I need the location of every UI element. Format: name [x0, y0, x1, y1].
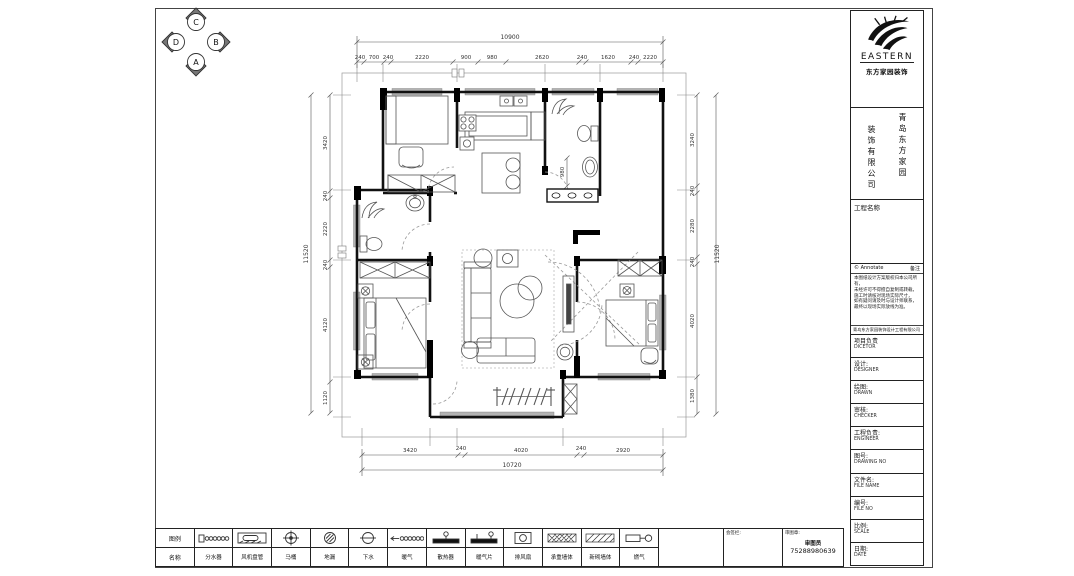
svg-text:1620: 1620: [601, 55, 615, 61]
study-chair: [399, 147, 423, 168]
legend-item: 地漏: [311, 529, 350, 566]
manifold-icon: [197, 530, 231, 546]
floor-drain-icon: [313, 530, 347, 546]
living-console: [497, 250, 518, 267]
logo-wordmark: EASTERN: [860, 52, 914, 63]
review-cell-label: 审图章:: [785, 530, 800, 536]
bedroom2-chair: [641, 348, 658, 364]
project-name-section: 工程名称: [851, 200, 923, 264]
row-scale: 比例: SCALE: [851, 520, 923, 543]
legend-item: 暖气: [388, 529, 427, 566]
furniture: [358, 96, 662, 414]
new-wall-icon: [583, 530, 617, 546]
drain-icon: [351, 530, 385, 546]
row-file-no: 编号: FILE NO: [851, 497, 923, 520]
row-file-name: 文件名: FILE NAME: [851, 474, 923, 497]
svg-text:2220: 2220: [415, 55, 429, 61]
svg-text:2280: 2280: [690, 219, 696, 233]
legend-item: 燃气: [620, 529, 659, 566]
bath2-sink: [583, 157, 598, 177]
radiator-icon: [429, 530, 463, 546]
logo-section: EASTERN 东方家园装饰: [851, 11, 923, 108]
svg-text:4120: 4120: [323, 318, 329, 332]
drawing-sheet: { "compass": {"top":"C","right":"B","bot…: [0, 0, 1074, 576]
bath1-plant: [362, 202, 384, 218]
bedroom1-nightstand-top: [358, 284, 373, 298]
legend-header-cell: 图例 名称: [156, 529, 195, 566]
notes-section: © Annotate 备注 本图纸设计方案版权归本公司所有， 未经许可不得擅自复…: [851, 264, 923, 335]
svg-text:2220: 2220: [323, 222, 329, 236]
row-date: 日期: DATE: [851, 543, 923, 565]
tv-cabinet: [563, 276, 574, 332]
compass-letter-left: D: [173, 38, 179, 47]
gas-meter-icon: [622, 530, 656, 546]
svg-text:3420: 3420: [403, 448, 417, 454]
svg-text:4020: 4020: [514, 448, 528, 454]
kitchen-stove: [459, 115, 476, 150]
entry-stool: [557, 344, 573, 360]
svg-text:240: 240: [323, 259, 329, 270]
company-name-section: 青岛东方家园 装饰有限公司: [851, 108, 923, 200]
legend-item: 暖气片: [466, 529, 505, 566]
svg-text:2220: 2220: [643, 55, 657, 61]
bath2-plant: [552, 99, 574, 115]
svg-text:2620: 2620: [535, 55, 549, 61]
kitchen-counter: [465, 112, 545, 140]
svg-text:240: 240: [576, 446, 587, 452]
svg-text:240: 240: [323, 190, 329, 201]
bath1-toilet: [360, 236, 382, 252]
svg-text:240: 240: [383, 55, 394, 61]
svg-text:700: 700: [369, 55, 380, 61]
plan-envelope: [342, 73, 686, 437]
svg-text:3240: 3240: [690, 133, 696, 147]
door-arcs: [402, 167, 640, 404]
bedroom2-nightstand: [620, 284, 634, 297]
legend-item: 分水器: [195, 529, 234, 566]
bath2-cabinet: [547, 189, 598, 202]
logo-subtitle: 东方家园装饰: [866, 66, 908, 76]
svg-text:240: 240: [355, 55, 366, 61]
bedroom1-wardrobe: [360, 262, 430, 278]
svg-text:2920: 2920: [616, 448, 630, 454]
legend-item: 承重墙体: [543, 529, 582, 566]
bedroom2-bed: [606, 300, 658, 346]
compass-letter-top: C: [193, 18, 199, 27]
legend-item: 马桶: [272, 529, 311, 566]
windows: [354, 89, 667, 419]
svg-text:900: 900: [461, 55, 472, 61]
legend-spacer-cell: [659, 529, 724, 566]
living-coffee-table: [500, 276, 542, 318]
svg-text:3420: 3420: [323, 136, 329, 150]
bath1-sink: [406, 195, 424, 211]
signature-cell: 会签栏:: [724, 529, 783, 566]
project-name-label: 工程名称: [854, 204, 880, 212]
notes-footer: 青岛东方家园装饰设计工程有限公司: [851, 325, 923, 334]
svg-text:10900: 10900: [500, 34, 519, 41]
wall-piers: [354, 88, 666, 379]
load-bearing-wall-icon: [545, 530, 579, 546]
reviewer-name: 审图员: [783, 539, 843, 547]
notes-line: 未经许可不得擅自复制或转载，: [854, 288, 920, 294]
legend-item: 散热器: [427, 529, 466, 566]
notes-annotate-mark: © Annotate: [854, 265, 883, 272]
fan-coil-icon: [235, 530, 269, 546]
legend-strip: 图例 名称 分水器 风机盘管 马桶 地漏 下水 暖气 散热器 暖气片 排风扇 承…: [155, 528, 844, 567]
axis-ticks: [333, 64, 695, 446]
heating-coil-icon: [390, 530, 424, 546]
row-designer: 设计: DESIGNER: [851, 358, 923, 381]
compass-letter-right: B: [213, 38, 219, 47]
elevation-compass: C B A D: [162, 8, 230, 76]
row-checker: 审核: CHECKER: [851, 404, 923, 427]
legend-item: 排风扇: [504, 529, 543, 566]
living-side-table-bottom: [462, 342, 479, 359]
reviewer-phone: 75288980639: [783, 547, 843, 555]
eastern-logo-swoosh: [858, 15, 916, 51]
svg-text:1380: 1380: [690, 389, 696, 403]
bath2-toilet: [578, 126, 599, 142]
svg-text:980: 980: [560, 166, 566, 177]
legend-header-bottom: 名称: [156, 548, 194, 566]
study-bed: [386, 96, 448, 144]
notes-label: 备注: [910, 265, 920, 272]
svg-text:240: 240: [690, 256, 696, 267]
svg-text:11520: 11520: [714, 244, 721, 263]
title-block-panel: EASTERN 东方家园装饰 青岛东方家园 装饰有限公司 工程名称 © Anno…: [850, 10, 924, 566]
notes-line: 本图纸设计方案版权归本公司所有，: [854, 276, 920, 288]
company-name-col-left: 装饰有限公司: [866, 125, 877, 191]
dimension-labels: 10900 240 700 240 2220 900 980 2620 240 …: [303, 34, 721, 469]
row-drawn: 绘图: DRAWN: [851, 381, 923, 404]
svg-text:11520: 11520: [303, 244, 310, 263]
svg-text:240: 240: [456, 446, 467, 452]
dining-table: [482, 153, 520, 193]
bedroom1-nightstand-bottom: [358, 355, 373, 369]
notes-line: 最终以现场实际放线为准。: [854, 305, 920, 311]
legend-header-top: 图例: [156, 529, 194, 548]
signature-cell-label: 会签栏:: [726, 530, 741, 536]
row-director: 项目负责 DICETOR: [851, 335, 923, 358]
review-cell: 审图章: 审图员 75288980639: [783, 529, 843, 566]
row-engineer: 工程负责: ENGINEER: [851, 427, 923, 450]
bedroom2-wardrobe: [618, 260, 662, 276]
svg-text:240: 240: [690, 185, 696, 196]
exhaust-fan-icon: [506, 530, 540, 546]
svg-text:980: 980: [487, 55, 498, 61]
dimension-lines: [309, 36, 719, 476]
legend-item: 风机盘管: [233, 529, 272, 566]
legend-item: 新砌墙体: [582, 529, 621, 566]
row-drawing-no: 图号: DRAWING NO: [851, 450, 923, 473]
svg-text:240: 240: [577, 55, 588, 61]
radiator-valve-icon: [467, 530, 501, 546]
svg-text:4020: 4020: [690, 314, 696, 328]
svg-text:1120: 1120: [323, 391, 329, 405]
company-name-col-right: 青岛东方家园: [897, 113, 908, 179]
balcony-pier: [564, 384, 577, 414]
svg-text:240: 240: [629, 55, 640, 61]
toilet-drain-icon: [274, 530, 308, 546]
svg-text:10720: 10720: [502, 462, 521, 469]
balcony-drying-rack: [493, 387, 555, 406]
kitchen-sink: [500, 96, 527, 106]
living-sofa: [464, 262, 491, 348]
living-side-table-top: [474, 249, 492, 267]
legend-item: 下水: [349, 529, 388, 566]
compass-letter-bottom: A: [193, 58, 199, 67]
